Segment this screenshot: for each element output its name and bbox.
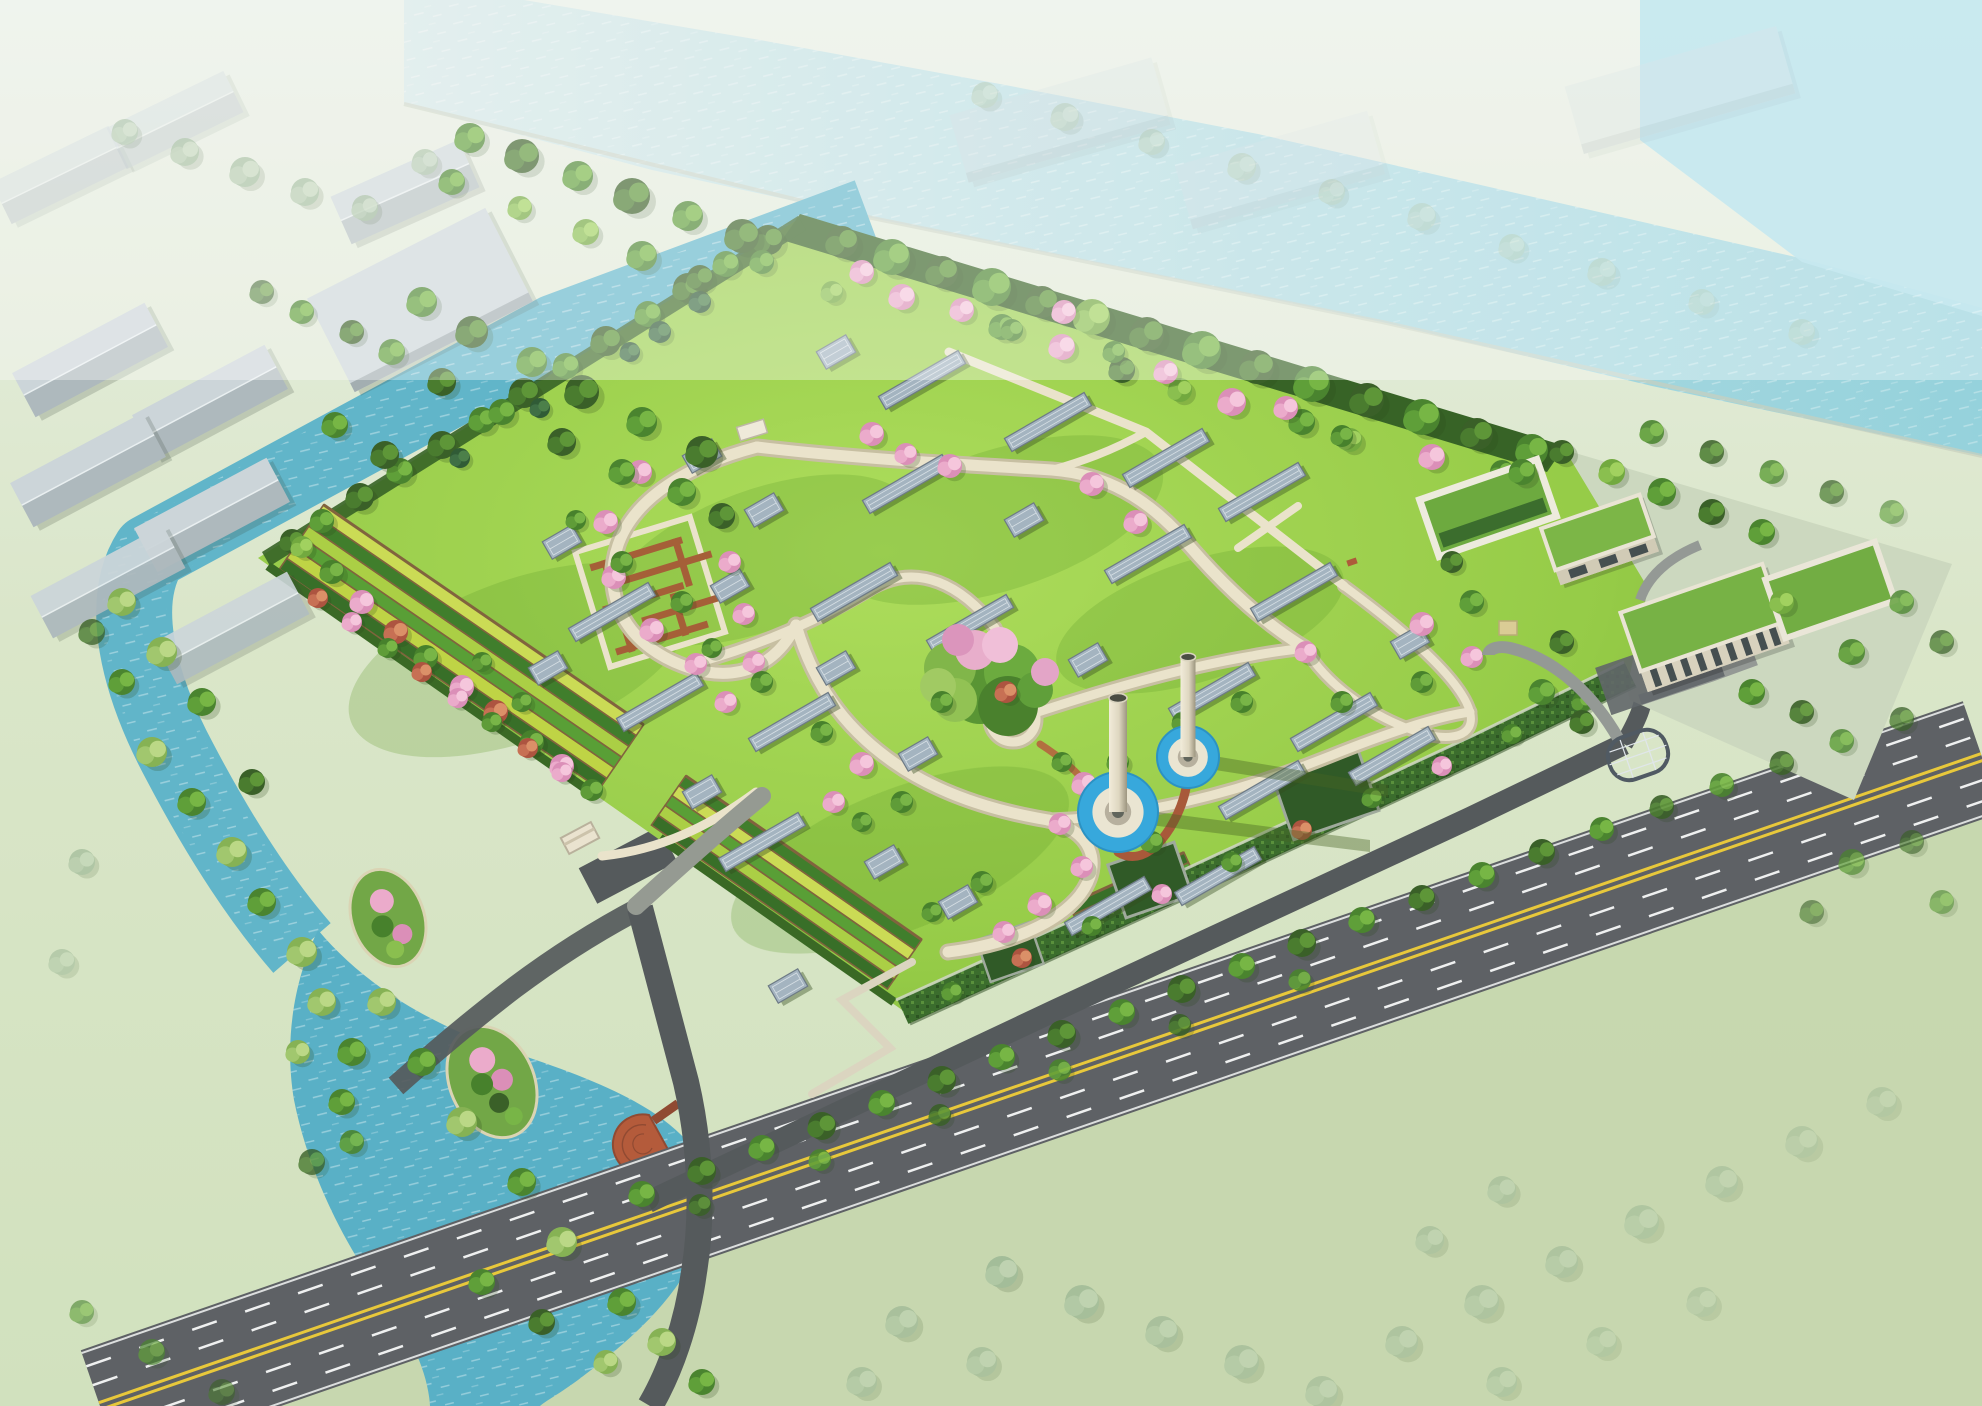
scene-svg: [0, 0, 1982, 1406]
global-veil: [0, 0, 1982, 1406]
aerial-rendering: [0, 0, 1982, 1406]
